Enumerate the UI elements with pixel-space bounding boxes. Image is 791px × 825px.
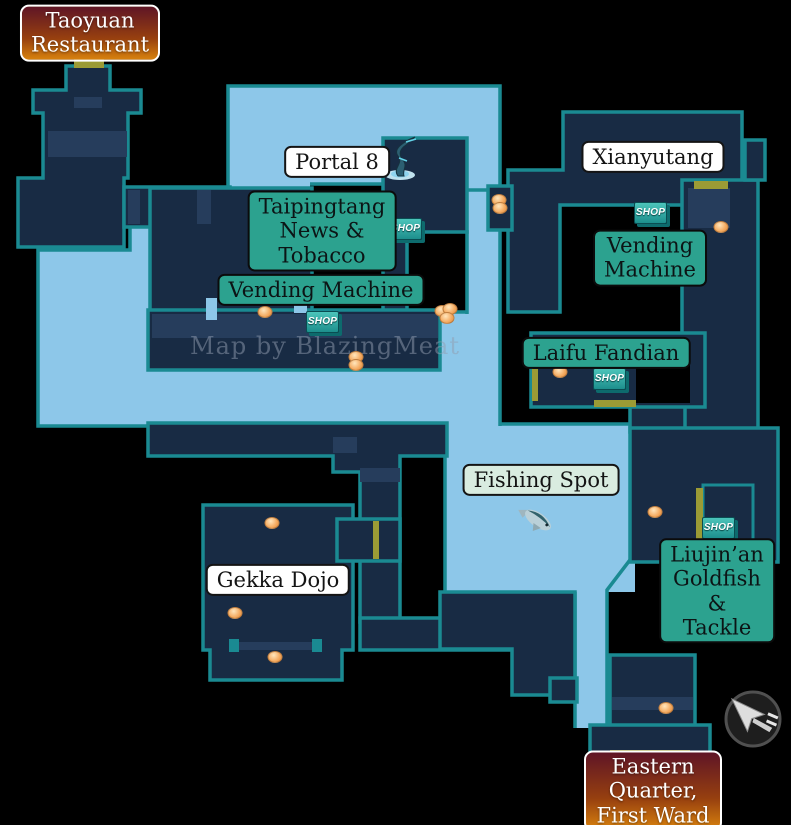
shop-badge: SHOP xyxy=(634,202,667,224)
item-dot xyxy=(714,221,729,233)
item-dot xyxy=(659,702,674,714)
xianyutang-door xyxy=(694,181,728,189)
exit-building xyxy=(610,655,695,727)
laifu-door-south xyxy=(594,400,636,407)
item-dot xyxy=(440,312,455,324)
item-dot xyxy=(268,651,283,663)
label-xianyutang: Xianyutang xyxy=(581,141,724,173)
item-dot xyxy=(349,359,364,371)
map-svg xyxy=(0,0,791,825)
laifu-door-west xyxy=(532,369,538,401)
item-dot xyxy=(493,202,508,214)
label-fishing-spot: Fishing Spot xyxy=(463,464,620,496)
label-laifu-fandian: Laifu Fandian xyxy=(522,337,691,369)
label-eastern-quarter-first-ward: Eastern Quarter, First Ward xyxy=(584,750,722,825)
map-watermark: Map by BlazingMeat xyxy=(190,332,460,360)
item-dot xyxy=(648,506,663,518)
item-dot xyxy=(265,517,280,529)
shop-badge: SHOP xyxy=(306,311,339,333)
dojo-door xyxy=(373,521,379,559)
item-dot xyxy=(258,306,273,318)
item-dot xyxy=(228,607,243,619)
dojo-entrance xyxy=(337,519,400,561)
shop-badge: SHOP xyxy=(593,368,626,390)
label-liujinan-goldfish-tackle: Liujin’an Goldfish & Tackle xyxy=(659,538,775,643)
shop-badge: SHOP xyxy=(702,517,735,539)
map-canvas: Map by BlazingMeat SHOPSHOPSHOPSHOPSHOPT… xyxy=(0,0,791,825)
exit-hall xyxy=(590,725,710,753)
label-gekka-dojo: Gekka Dojo xyxy=(206,564,350,596)
compass-icon xyxy=(723,685,780,746)
label-vending-machine-east: Vending Machine xyxy=(593,230,707,287)
label-vending-machine-west: Vending Machine xyxy=(218,274,425,306)
label-taoyuan-restaurant: Taoyuan Restaurant xyxy=(20,5,160,62)
label-taipingtang-news-tobacco: Taipingtang News & Tobacco xyxy=(248,190,397,271)
label-portal-8: Portal 8 xyxy=(284,146,390,178)
